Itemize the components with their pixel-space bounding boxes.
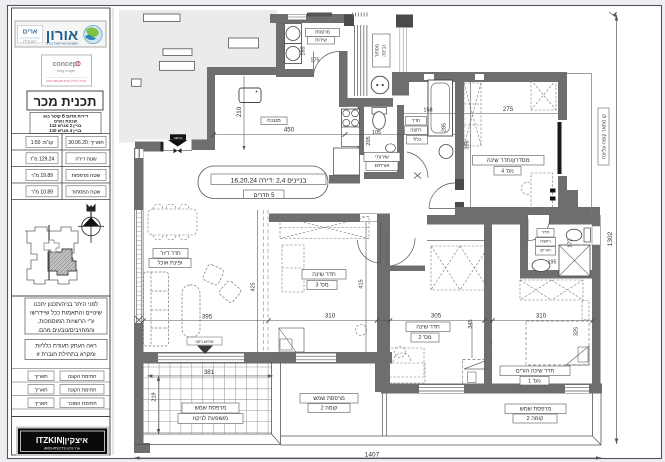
svg-text:275: 275 [503, 106, 514, 113]
svg-text:חדר: חדר [412, 119, 420, 124]
svg-text:מסתור: מסתור [375, 44, 380, 57]
svg-text:219: 219 [152, 392, 158, 401]
svg-text:מרפסת שמש: מרפסת שמש [195, 406, 227, 412]
svg-text:קנ"מ: 1:50: קנ"מ: 1:50 [31, 140, 54, 146]
svg-text:ע"י הרשויות המוסמכות,: ע"י הרשויות המוסמכות, [38, 319, 95, 325]
svg-text:מס' 4: מס' 4 [501, 168, 514, 174]
svg-text:310: 310 [325, 313, 336, 320]
svg-text:רחצה: רחצה [410, 128, 422, 133]
svg-text:שיפוע ניקוז: שיפוע ניקוז [195, 339, 213, 344]
svg-text:105: 105 [372, 130, 381, 136]
svg-text:חדר: חדר [542, 230, 550, 235]
svg-text:רחצה: רחצה [540, 239, 551, 244]
svg-text:אורחים: אורחים [375, 163, 391, 169]
svg-text:חתימת הקונה: חתימת הקונה [68, 388, 97, 394]
svg-text:1407: 1407 [365, 452, 380, 459]
svg-text:מרפסת: מרפסת [315, 31, 330, 36]
svg-text:396: 396 [465, 140, 471, 149]
svg-text:310: 310 [536, 313, 547, 320]
svg-text:305: 305 [431, 313, 442, 320]
svg-text:חדר דיור: חדר דיור [160, 251, 181, 257]
svg-text:בניינים 2,4 :דירה 16,20,24: בניינים 2,4 :דירה 16,20,24 [231, 178, 307, 185]
svg-text:תאריך: 30.06.20: תאריך: 30.06.20 [68, 140, 104, 146]
svg-text:מרפסת שמש: מרפסת שמש [520, 406, 552, 412]
svg-text:450: 450 [284, 127, 295, 134]
svg-text:הורים: הורים [540, 248, 551, 253]
svg-text:כביסה: כביסה [382, 44, 387, 57]
svg-text:ופינת אוכל: ופינת אוכל [158, 260, 183, 267]
svg-text:חתימת המוכר: חתימת המוכר [67, 401, 96, 407]
svg-text:לפני היתר בניה/תכנון יתכנו: לפני היתר בניה/תכנון יתכנו [34, 301, 98, 308]
svg-text:תאריך: תאריך [34, 388, 48, 394]
svg-text:325: 325 [574, 327, 580, 336]
svg-text:ייזום נדל"ן: ייזום נדל"ן [23, 40, 36, 44]
svg-text:205: 205 [366, 136, 372, 145]
svg-text:381: 381 [204, 369, 215, 376]
svg-text:חברה לבניין בע"מ מקבוצת אורון: חברה לבניין בע"מ מקבוצת אורון [46, 79, 86, 83]
svg-text:10.89 מ"ר: 10.89 מ"ר [31, 190, 53, 196]
svg-text:425: 425 [251, 282, 257, 291]
svg-text:1302: 1302 [607, 231, 614, 246]
svg-text:קומה 2: קומה 2 [321, 406, 338, 412]
svg-text:שטח מרפסות: שטח מרפסות [72, 173, 101, 179]
svg-text:ומקרא בתחילת חוברת זו: ומקרא בתחילת חוברת זו [36, 351, 96, 358]
svg-text:חתימת הקונה: חתימת הקונה [68, 374, 97, 380]
svg-text:חדר שינה הורים: חדר שינה הורים [516, 369, 555, 375]
svg-text:שטח דירה: שטח דירה [75, 157, 97, 163]
svg-text:שטח המסתור: שטח המסתור [72, 190, 101, 196]
svg-text:שינויים והתאמות ככל שיידרשו: שינויים והתאמות ככל שיידרשו [30, 310, 102, 317]
svg-text:כניסה: כניסה [174, 136, 183, 140]
svg-text:שירותי: שירותי [375, 154, 389, 160]
svg-text:158: 158 [423, 108, 432, 114]
svg-text:ITZKIN|איצקין: ITZKIN|איצקין [36, 436, 88, 445]
svg-text:285: 285 [442, 123, 448, 132]
svg-text:תאריך: תאריך [34, 401, 48, 407]
svg-text:מס' 2: מס' 2 [418, 335, 431, 341]
svg-text:175: 175 [310, 58, 319, 64]
svg-text:משופעת לניקוז: משופעת לניקוז [193, 415, 228, 422]
svg-text:חדר שינה: חדר שינה [312, 272, 336, 278]
svg-text:172: 172 [568, 238, 574, 247]
svg-text:מטבח: מטבח [267, 118, 281, 124]
svg-text:165: 165 [301, 46, 307, 55]
svg-text:מסדרון/חדר שינה: מסדרון/חדר שינה [487, 158, 530, 164]
svg-text:תכנית מכר: תכנית מכר [34, 94, 97, 109]
svg-text:ARCHITECTS אדריכלים: ARCHITECTS אדריכלים [44, 447, 81, 451]
svg-text:והמחויבים/נובעים מהם.: והמחויבים/נובעים מהם. [38, 328, 95, 334]
svg-text:מס' 1: מס' 1 [528, 378, 541, 384]
svg-text:129.24 מ"ר: 129.24 מ"ר [30, 157, 55, 163]
svg-text:ראה העתק תעודת כלליות: ראה העתק תעודת כלליות [35, 343, 96, 350]
svg-text:5 חדרים: 5 חדרים [254, 193, 276, 199]
svg-text:קו מתאר קומה עליונה: קו מתאר קומה עליונה [600, 114, 607, 159]
svg-text:415: 415 [359, 279, 365, 288]
svg-text:210: 210 [236, 106, 243, 117]
svg-text:living in style: living in style [57, 69, 75, 73]
svg-text:19.89 מ"ר: 19.89 מ"ר [31, 173, 53, 179]
svg-text:שירות: שירות [315, 38, 327, 43]
svg-text:כללי: כללי [413, 136, 422, 143]
svg-text:חדר שינה: חדר שינה [416, 325, 440, 331]
svg-text:בניין 4 מגרש 110: בניין 4 מגרש 110 [50, 128, 82, 133]
svg-text:השקעות ואחזקות בע"מ: השקעות ואחזקות בע"מ [46, 42, 79, 46]
svg-text:ארים: ארים [23, 29, 38, 36]
svg-text:395: 395 [202, 314, 213, 321]
svg-text:195: 195 [548, 260, 557, 266]
svg-text:תאריך: תאריך [34, 374, 48, 380]
svg-text:מס' 3: מס' 3 [315, 283, 328, 289]
svg-text:מרפסת שמש: מרפסת שמש [313, 396, 345, 402]
svg-text:קומה 2: קומה 2 [527, 416, 544, 422]
